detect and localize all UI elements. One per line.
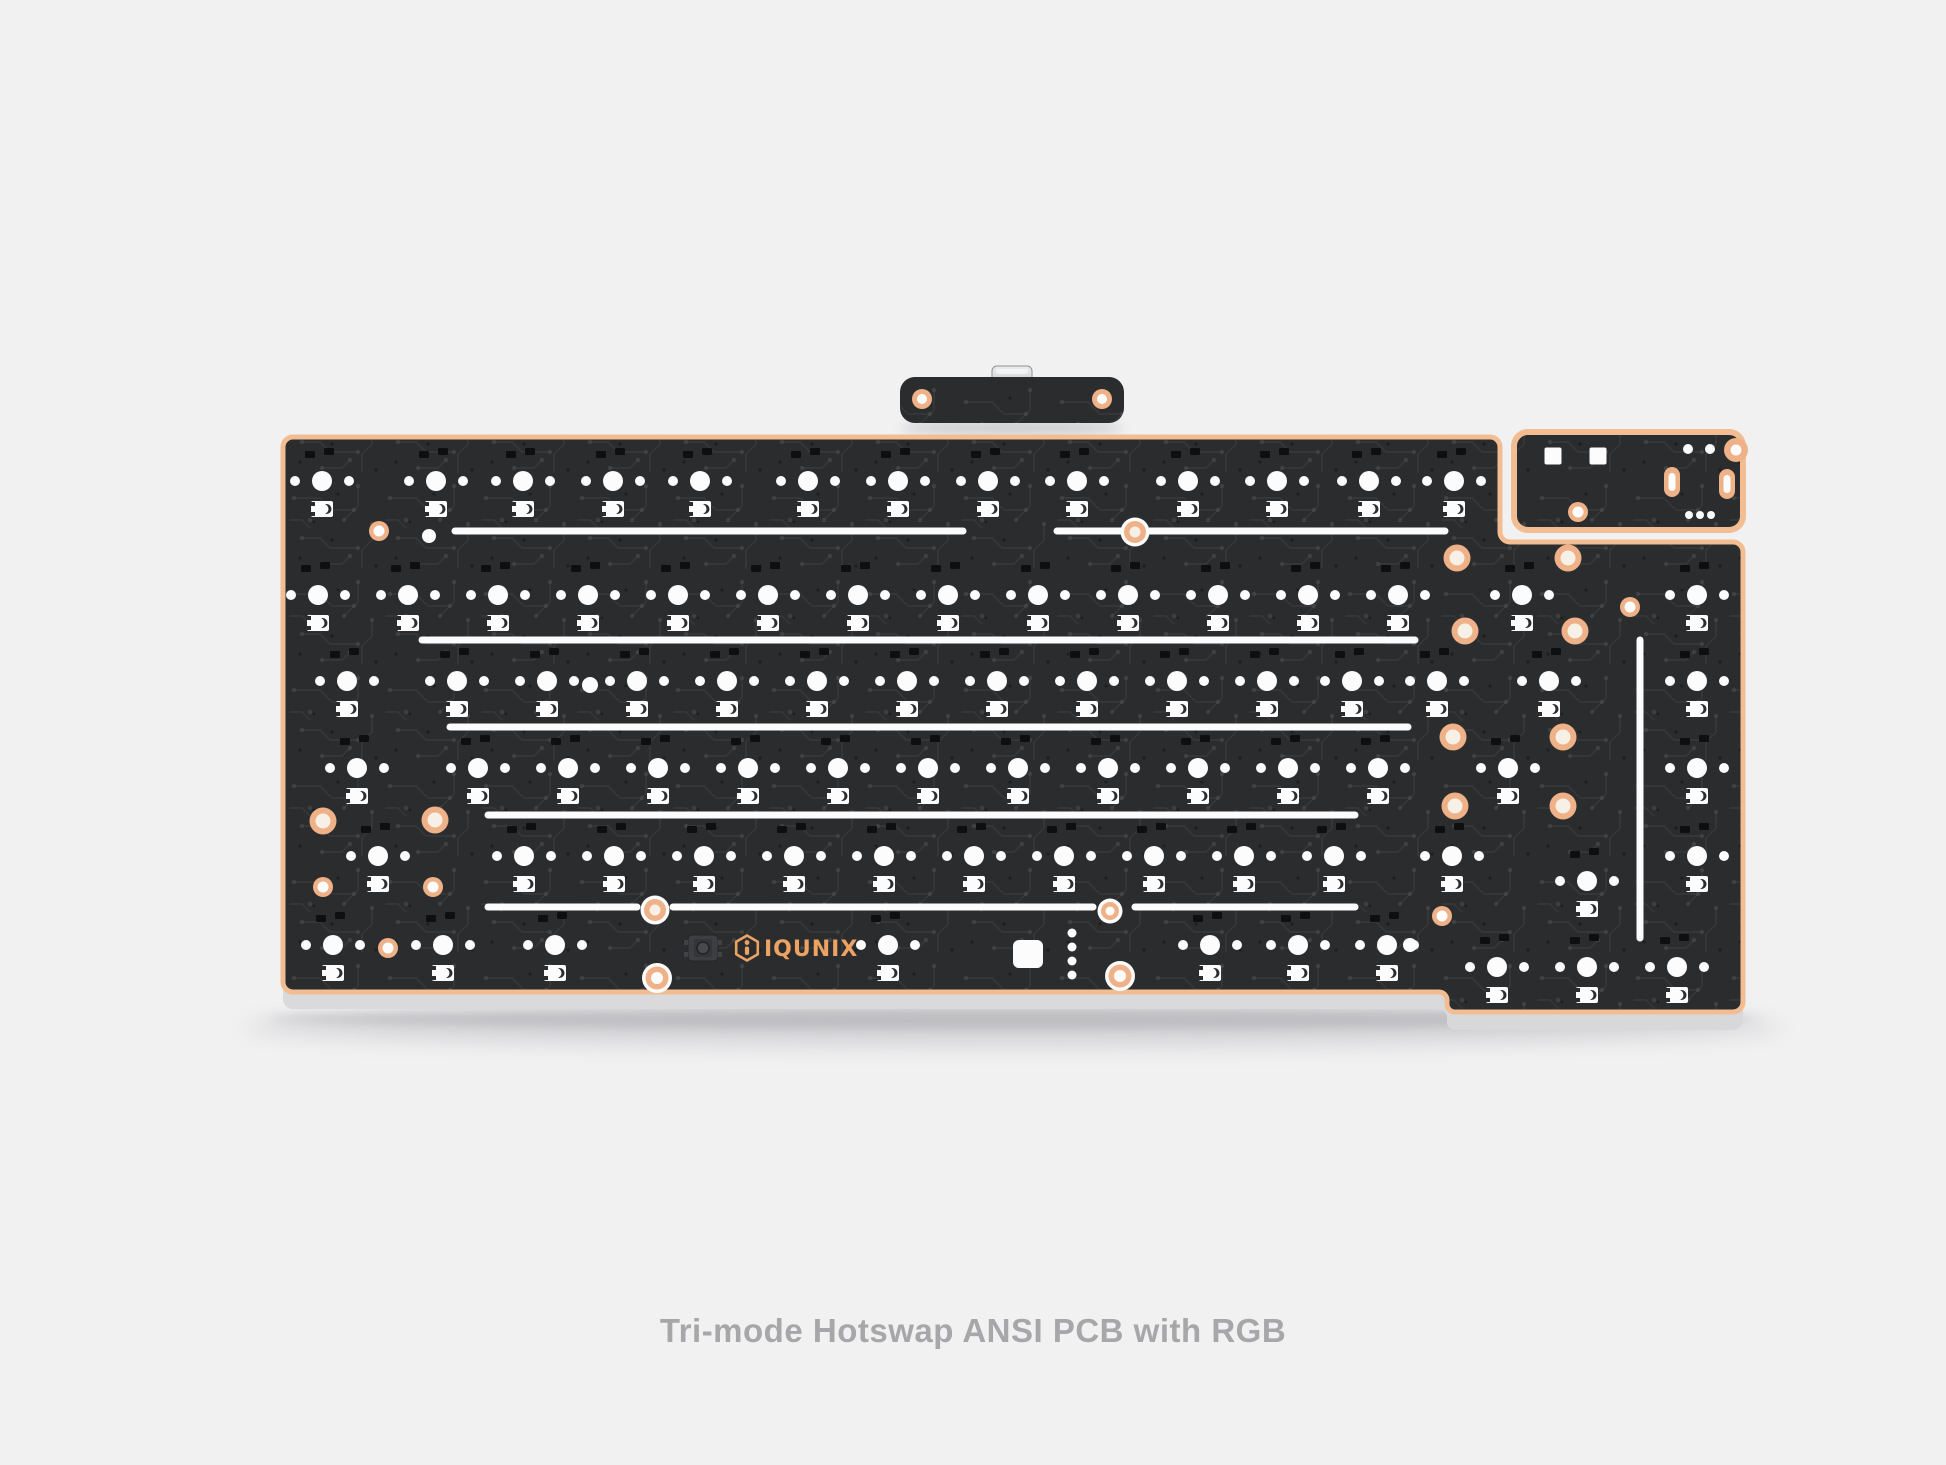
alignment-hole (736, 590, 746, 600)
led-pad (1370, 915, 1380, 922)
alignment-hole (1422, 476, 1432, 486)
alignment-hole (722, 476, 732, 486)
led-pad (461, 738, 471, 745)
switch-center-hole (1257, 671, 1277, 691)
switch-center-hole (368, 846, 388, 866)
alignment-hole (315, 676, 325, 686)
led-pad (881, 451, 891, 458)
alignment-hole (1176, 851, 1186, 861)
led-pad (335, 912, 345, 919)
led-pad (1680, 565, 1690, 572)
alignment-hole (1212, 851, 1222, 861)
led-pad (590, 562, 600, 569)
alignment-hole (1240, 590, 1250, 600)
led-pad (1137, 826, 1147, 833)
switch-center-hole (938, 585, 958, 605)
alignment-hole (636, 851, 646, 861)
alignment-hole (346, 851, 356, 861)
led-pad (1066, 823, 1076, 830)
led-pad (1260, 451, 1270, 458)
led-pad (683, 451, 693, 458)
led-pad (1227, 826, 1237, 833)
usb-board (900, 377, 1124, 423)
alignment-hole (680, 763, 690, 773)
switch-center-hole (468, 758, 488, 778)
alignment-hole (605, 676, 615, 686)
led-pad (1250, 651, 1260, 658)
switch-center-hole (308, 585, 328, 605)
alignment-hole (1150, 590, 1160, 600)
led-pad (1454, 823, 1464, 830)
switch-center-hole (1067, 471, 1087, 491)
switch-center-hole (987, 671, 1007, 691)
led-pad (481, 565, 491, 572)
switch-center-hole (433, 935, 453, 955)
switch-center-hole (514, 846, 534, 866)
alignment-hole (1096, 590, 1106, 600)
led-pad (900, 448, 910, 455)
alignment-hole (500, 763, 510, 773)
led-pad (1271, 738, 1281, 745)
led-pad (1201, 565, 1211, 572)
alignment-hole (1420, 590, 1430, 600)
alignment-hole (695, 676, 705, 686)
alignment-hole (749, 676, 759, 686)
switch-center-hole (1368, 758, 1388, 778)
led-pad (1524, 562, 1534, 569)
led-pad (1089, 648, 1099, 655)
led-pad (571, 565, 581, 572)
alignment-hole (1076, 763, 1086, 773)
reset-switch (684, 935, 722, 961)
led-pad (990, 448, 1000, 455)
alignment-hole (1337, 476, 1347, 486)
led-pad (1505, 565, 1515, 572)
switch-center-hole (874, 846, 894, 866)
alignment-hole (626, 763, 636, 773)
led-pad (821, 738, 831, 745)
alignment-hole (556, 590, 566, 600)
alignment-hole (1517, 676, 1527, 686)
switch-center-hole (1188, 758, 1208, 778)
switch-center-hole (1512, 585, 1532, 605)
alignment-hole (1420, 851, 1430, 861)
alignment-hole (466, 590, 476, 600)
alignment-hole (1235, 676, 1245, 686)
led-pad (791, 451, 801, 458)
led-pad (525, 448, 535, 455)
alignment-hole (880, 590, 890, 600)
led-pad (660, 735, 670, 742)
alignment-hole (1040, 763, 1050, 773)
alignment-hole (1256, 763, 1266, 773)
led-pad (777, 826, 787, 833)
alignment-hole (770, 763, 780, 773)
led-pad (1291, 565, 1301, 572)
led-pad (1047, 826, 1057, 833)
switch-center-hole (964, 846, 984, 866)
alignment-hole (491, 476, 501, 486)
alignment-hole (1476, 476, 1486, 486)
led-pad (931, 565, 941, 572)
led-pad (1181, 738, 1191, 745)
alignment-hole (1374, 676, 1384, 686)
pin-hole (1068, 971, 1077, 980)
led-pad (1589, 934, 1599, 941)
switch-center-hole (758, 585, 778, 605)
led-pad (639, 648, 649, 655)
led-pad (526, 823, 536, 830)
alignment-hole (659, 676, 669, 686)
switch-center-hole (690, 471, 710, 491)
led-pad (1435, 826, 1445, 833)
alignment-hole (1699, 962, 1709, 972)
alignment-hole (355, 940, 365, 950)
led-pad (1040, 562, 1050, 569)
alignment-hole (1609, 876, 1619, 886)
led-pad (1269, 648, 1279, 655)
switch-center-hole (398, 585, 418, 605)
alignment-hole (425, 676, 435, 686)
pin-hole (1707, 511, 1715, 519)
alignment-hole (826, 590, 836, 600)
alignment-hole (286, 590, 296, 600)
led-pad (1456, 448, 1466, 455)
led-pad (320, 562, 330, 569)
alignment-hole (465, 940, 475, 950)
plate-hole (582, 677, 598, 693)
switch-center-hole (578, 585, 598, 605)
led-pad (909, 648, 919, 655)
alignment-hole (1060, 590, 1070, 600)
logo-text: IQUNIX (764, 937, 858, 962)
alignment-hole (1391, 476, 1401, 486)
switch-center-hole (1278, 758, 1298, 778)
switch-center-hole (1200, 935, 1220, 955)
led-pad (1001, 738, 1011, 745)
led-pad (440, 651, 450, 658)
led-pad (1510, 735, 1520, 742)
alignment-hole (1530, 763, 1540, 773)
led-pad (890, 912, 900, 919)
led-pad (359, 735, 369, 742)
alignment-hole (1122, 851, 1132, 861)
alignment-hole (950, 763, 960, 773)
led-pad (976, 823, 986, 830)
switch-center-hole (1687, 758, 1707, 778)
led-pad (1699, 823, 1709, 830)
switch-center-hole (1377, 935, 1397, 955)
alignment-hole (325, 763, 335, 773)
switch-center-hole (488, 585, 508, 605)
alignment-hole (1156, 476, 1166, 486)
led-pad (886, 823, 896, 830)
alignment-hole (635, 476, 645, 486)
pin-hole (1705, 444, 1715, 454)
alignment-hole (1665, 851, 1675, 861)
switch-center-hole (1144, 846, 1164, 866)
alignment-hole (942, 851, 952, 861)
led-pad (1680, 738, 1690, 745)
corner-module (1514, 432, 1748, 530)
led-pad (391, 565, 401, 572)
led-pad (1279, 448, 1289, 455)
switch-center-hole (558, 758, 578, 778)
alignment-hole (1006, 590, 1016, 600)
led-pad (1491, 738, 1501, 745)
alignment-hole (776, 476, 786, 486)
led-pad (305, 451, 315, 458)
led-pad (419, 451, 429, 458)
alignment-hole (1519, 962, 1529, 972)
led-pad (1212, 912, 1222, 919)
pin-hole (1683, 444, 1693, 454)
switch-center-hole (627, 671, 647, 691)
led-pad (1371, 448, 1381, 455)
led-pad (867, 826, 877, 833)
switch-center-hole (717, 671, 737, 691)
alignment-hole (1490, 590, 1500, 600)
led-pad (1317, 826, 1327, 833)
alignment-hole (1245, 476, 1255, 486)
led-pad (1679, 934, 1689, 941)
led-pad (1354, 648, 1364, 655)
alignment-hole (479, 676, 489, 686)
switch-center-hole (798, 471, 818, 491)
alignment-hole (1366, 590, 1376, 600)
alignment-hole (1645, 962, 1655, 972)
switch-center-hole (604, 846, 624, 866)
switch-center-hole (1342, 671, 1362, 691)
alignment-hole (1032, 851, 1042, 861)
alignment-hole (1086, 851, 1096, 861)
switch-center-hole (1577, 871, 1597, 891)
alignment-hole (916, 590, 926, 600)
switch-center-hole (426, 471, 446, 491)
switch-center-hole (1388, 585, 1408, 605)
led-pad (1300, 912, 1310, 919)
switch-center-hole (738, 758, 758, 778)
led-pad (930, 735, 940, 742)
led-pad (1156, 823, 1166, 830)
led-pad (729, 648, 739, 655)
alignment-hole (1474, 851, 1484, 861)
led-pad (702, 448, 712, 455)
led-pad (480, 735, 490, 742)
led-pad (1020, 735, 1030, 742)
alignment-hole (340, 590, 350, 600)
alignment-hole (1166, 763, 1176, 773)
led-pad (661, 565, 671, 572)
alignment-hole (1289, 676, 1299, 686)
alignment-hole (1465, 962, 1475, 972)
alignment-hole (1320, 940, 1330, 950)
switch-center-hole (312, 471, 332, 491)
led-pad (840, 735, 850, 742)
alignment-hole (1355, 940, 1365, 950)
alignment-hole (520, 590, 530, 600)
alignment-hole (1010, 476, 1020, 486)
led-pad (438, 448, 448, 455)
alignment-hole (1220, 763, 1230, 773)
alignment-hole (726, 851, 736, 861)
led-pad (1190, 448, 1200, 455)
led-pad (1281, 915, 1291, 922)
led-pad (1699, 562, 1709, 569)
alignment-hole (376, 590, 386, 600)
pin-hole (1068, 929, 1077, 938)
alignment-hole (1409, 940, 1419, 950)
alignment-hole (1130, 763, 1140, 773)
pad-square (1590, 448, 1607, 465)
led-pad (1336, 823, 1346, 830)
pin-hole (1696, 511, 1704, 519)
switch-center-hole (1178, 471, 1198, 491)
led-pad (1091, 738, 1101, 745)
alignment-hole (581, 476, 591, 486)
led-pad (549, 648, 559, 655)
led-pad (500, 562, 510, 569)
plate-hole (422, 529, 436, 543)
alignment-hole (816, 851, 826, 861)
alignment-hole (910, 940, 920, 950)
alignment-hole (852, 851, 862, 861)
alignment-hole (785, 676, 795, 686)
led-pad (330, 651, 340, 658)
switch-center-hole (1077, 671, 1097, 691)
alignment-hole (577, 940, 587, 950)
led-pad (1070, 651, 1080, 658)
switch-center-hole (1667, 957, 1687, 977)
led-pad (971, 451, 981, 458)
led-pad (615, 448, 625, 455)
pin-hole (1068, 957, 1077, 966)
usb-daughterboard (900, 366, 1124, 423)
switch-center-hole (1167, 671, 1187, 691)
alignment-hole (1555, 962, 1565, 972)
switch-center-hole (828, 758, 848, 778)
led-pad (1532, 651, 1542, 658)
switch-center-hole (347, 758, 367, 778)
switch-center-hole (878, 935, 898, 955)
alignment-hole (1555, 876, 1565, 886)
switch-center-hole (897, 671, 917, 691)
alignment-hole (970, 590, 980, 600)
led-pad (1290, 735, 1300, 742)
product-caption: Tri-mode Hotswap ANSI PCB with RGB (0, 1312, 1946, 1350)
switch-center-hole (1234, 846, 1254, 866)
alignment-hole (1405, 676, 1415, 686)
led-pad (426, 915, 436, 922)
led-pad (530, 651, 540, 658)
led-pad (687, 826, 697, 833)
alignment-hole (1310, 763, 1320, 773)
led-pad (1021, 565, 1031, 572)
led-pad (1200, 735, 1210, 742)
led-pad (551, 738, 561, 745)
led-pad (710, 651, 720, 658)
alignment-hole (986, 763, 996, 773)
alignment-hole (716, 763, 726, 773)
switch-center-hole (337, 671, 357, 691)
led-pad (841, 565, 851, 572)
led-pad (380, 823, 390, 830)
alignment-hole (1665, 590, 1675, 600)
alignment-hole (515, 676, 525, 686)
switch-center-hole (1427, 671, 1447, 691)
led-pad (596, 451, 606, 458)
switch-center-hole (1487, 957, 1507, 977)
alignment-hole (1609, 962, 1619, 972)
alignment-hole (996, 851, 1006, 861)
led-pad (620, 651, 630, 658)
alignment-hole (545, 476, 555, 486)
led-pad (980, 651, 990, 658)
alignment-hole (1665, 676, 1675, 686)
alignment-hole (610, 590, 620, 600)
switch-center-hole (1028, 585, 1048, 605)
led-pad (410, 562, 420, 569)
alignment-hole (569, 676, 579, 686)
alignment-hole (1571, 676, 1581, 686)
led-pad (750, 735, 760, 742)
alignment-hole (1276, 590, 1286, 600)
switch-center-hole (1444, 471, 1464, 491)
led-pad (641, 738, 651, 745)
pin-hole (1685, 511, 1693, 519)
switch-center-hole (1288, 935, 1308, 955)
alignment-hole (536, 763, 546, 773)
led-pad (860, 562, 870, 569)
alignment-hole (1145, 676, 1155, 686)
pin-hole (1068, 943, 1077, 952)
led-pad (1680, 651, 1690, 658)
led-pad (1439, 648, 1449, 655)
switch-center-hole (1539, 671, 1559, 691)
led-pad (810, 448, 820, 455)
product-image-stage: IQUNIX Tri-mode Hotswap ANSI PCB with RG… (0, 0, 1946, 1460)
alignment-hole (411, 940, 421, 950)
alignment-hole (1109, 676, 1119, 686)
switch-center-hole (1577, 957, 1597, 977)
led-pad (445, 912, 455, 919)
led-pad (1420, 651, 1430, 658)
led-pad (1361, 738, 1371, 745)
alignment-hole (1719, 851, 1729, 861)
alignment-hole (1302, 851, 1312, 861)
switch-center-hole (888, 471, 908, 491)
alignment-hole (430, 590, 440, 600)
alignment-hole (1356, 851, 1366, 861)
alignment-hole (1232, 940, 1242, 950)
led-pad (361, 826, 371, 833)
alignment-hole (806, 763, 816, 773)
switch-center-hole (848, 585, 868, 605)
alignment-hole (1459, 676, 1469, 686)
alignment-hole (301, 940, 311, 950)
switch-center-hole (1298, 585, 1318, 605)
led-pad (890, 651, 900, 658)
switch-center-hole (1687, 585, 1707, 605)
alignment-hole (866, 476, 876, 486)
alignment-hole (830, 476, 840, 486)
alignment-hole (1178, 940, 1188, 950)
switch-center-hole (1442, 846, 1462, 866)
led-pad (349, 648, 359, 655)
switch-center-hole (1498, 758, 1518, 778)
led-pad (570, 735, 580, 742)
led-pad (999, 648, 1009, 655)
